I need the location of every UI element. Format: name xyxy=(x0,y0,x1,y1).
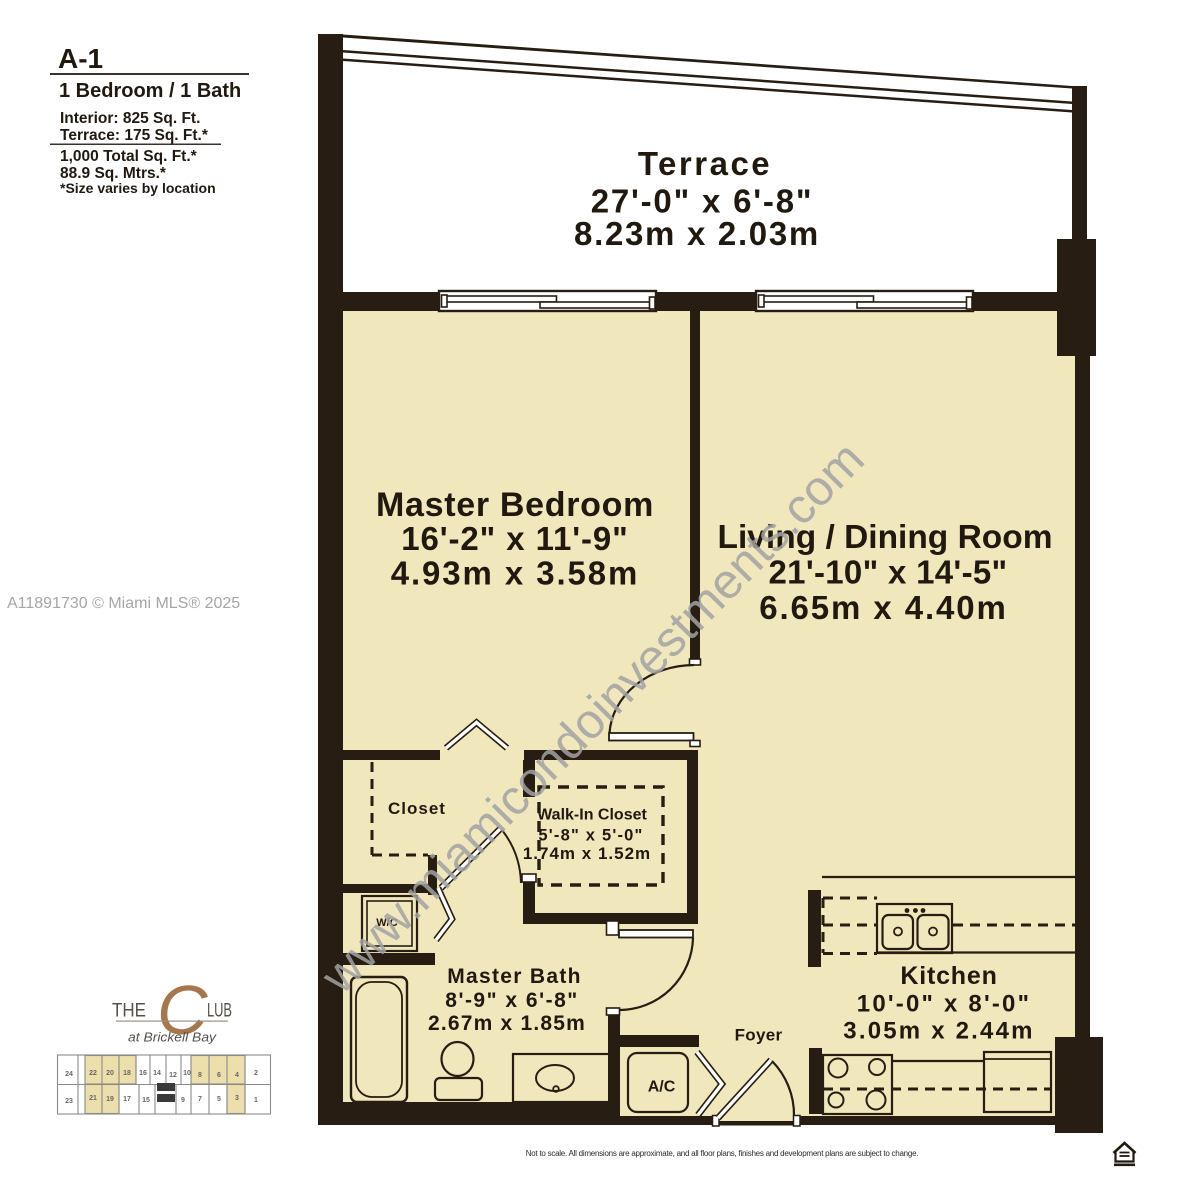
svg-text:8'-9" x 6'-8": 8'-9" x 6'-8" xyxy=(445,989,578,1012)
svg-text:1,000 Total Sq. Ft.*: 1,000 Total Sq. Ft.* xyxy=(60,148,198,165)
svg-text:4.93m x 3.58m: 4.93m x 3.58m xyxy=(391,555,640,592)
svg-text:at Brickell Bay: at Brickell Bay xyxy=(128,1030,218,1045)
svg-text:9: 9 xyxy=(181,1097,185,1104)
svg-text:27'-0" x 6'-8": 27'-0" x 6'-8" xyxy=(591,183,814,220)
svg-text:4: 4 xyxy=(235,1072,239,1079)
svg-text:Interior: 825 Sq. Ft.: Interior: 825 Sq. Ft. xyxy=(60,110,200,127)
svg-text:THE: THE xyxy=(112,1001,146,1022)
svg-text:Foyer: Foyer xyxy=(735,1026,783,1045)
svg-text:Not to scale. All dimensions a: Not to scale. All dimensions are approxi… xyxy=(526,1149,918,1158)
svg-text:*Size varies by location: *Size varies by location xyxy=(60,180,216,196)
svg-text:16'-2" x 11'-9": 16'-2" x 11'-9" xyxy=(401,520,628,557)
svg-text:3: 3 xyxy=(235,1095,239,1102)
svg-text:19: 19 xyxy=(106,1096,114,1103)
svg-text:A-1: A-1 xyxy=(58,43,103,74)
svg-text:A/C: A/C xyxy=(648,1079,676,1096)
svg-text:16: 16 xyxy=(139,1070,147,1077)
svg-text:6: 6 xyxy=(217,1072,221,1079)
svg-text:22: 22 xyxy=(89,1070,97,1077)
svg-text:LUB: LUB xyxy=(207,1001,232,1022)
svg-text:23: 23 xyxy=(65,1098,73,1105)
svg-text:8: 8 xyxy=(198,1072,202,1079)
svg-text:10'-0" x 8'-0": 10'-0" x 8'-0" xyxy=(857,991,1031,1018)
svg-text:Master Bath: Master Bath xyxy=(447,965,582,988)
svg-text:6.65m x 4.40m: 6.65m x 4.40m xyxy=(759,589,1008,626)
svg-text:5'-8" x 5'-0": 5'-8" x 5'-0" xyxy=(538,827,643,845)
svg-text:7: 7 xyxy=(198,1096,202,1103)
svg-text:21: 21 xyxy=(89,1095,97,1102)
svg-text:Master Bedroom: Master Bedroom xyxy=(376,486,654,524)
svg-text:Terrace: 175 Sq. Ft.*: Terrace: 175 Sq. Ft.* xyxy=(60,127,209,144)
svg-text:24: 24 xyxy=(65,1071,73,1078)
svg-text:3.05m x 2.44m: 3.05m x 2.44m xyxy=(843,1018,1034,1045)
svg-text:8.23m x 2.03m: 8.23m x 2.03m xyxy=(574,215,820,252)
svg-text:1: 1 xyxy=(254,1097,258,1104)
svg-text:12: 12 xyxy=(169,1072,177,1079)
svg-text:5: 5 xyxy=(217,1096,221,1103)
svg-text:20: 20 xyxy=(106,1070,114,1077)
svg-text:Closet: Closet xyxy=(388,799,446,818)
svg-text:15: 15 xyxy=(142,1097,150,1104)
svg-text:A11891730 © Miami MLS® 2025: A11891730 © Miami MLS® 2025 xyxy=(7,595,240,612)
svg-text:2.67m x 1.85m: 2.67m x 1.85m xyxy=(428,1012,586,1035)
svg-text:Terrace: Terrace xyxy=(638,145,772,182)
svg-text:Kitchen: Kitchen xyxy=(900,962,997,990)
svg-text:1.74m x 1.52m: 1.74m x 1.52m xyxy=(523,844,651,863)
svg-text:Walk-In Closet: Walk-In Closet xyxy=(537,807,647,824)
svg-text:1 Bedroom / 1 Bath: 1 Bedroom / 1 Bath xyxy=(59,80,241,102)
svg-text:2: 2 xyxy=(254,1070,258,1077)
svg-text:14: 14 xyxy=(153,1070,161,1077)
svg-text:21'-10" x 14'-5": 21'-10" x 14'-5" xyxy=(769,554,1008,591)
svg-text:18: 18 xyxy=(123,1070,131,1077)
svg-text:10: 10 xyxy=(183,1070,191,1077)
svg-text:17: 17 xyxy=(123,1096,131,1103)
